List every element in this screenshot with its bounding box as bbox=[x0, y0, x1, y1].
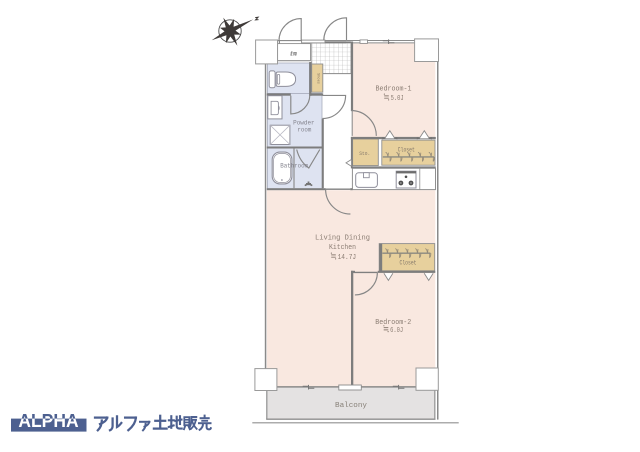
svg-text:Living Dining: Living Dining bbox=[315, 234, 370, 242]
svg-text:Kitchen: Kitchen bbox=[329, 244, 356, 252]
svg-text:6.0J: 6.0J bbox=[390, 327, 403, 335]
svg-text:14.7J: 14.7J bbox=[338, 254, 357, 262]
svg-text:room: room bbox=[297, 126, 311, 134]
svg-text:Balcony: Balcony bbox=[335, 402, 367, 410]
svg-text:Bathroom: Bathroom bbox=[280, 163, 308, 170]
svg-text:5.0J: 5.0J bbox=[391, 95, 404, 103]
svg-text:Closet: Closet bbox=[398, 146, 415, 153]
svg-text:Sto.: Sto. bbox=[359, 150, 370, 157]
svg-text:Closet: Closet bbox=[400, 260, 417, 267]
svg-text:Bedroom-2: Bedroom-2 bbox=[375, 319, 411, 327]
svg-text:Bedroom-1: Bedroom-1 bbox=[376, 85, 412, 93]
svg-text:Shoes: Shoes bbox=[316, 73, 321, 84]
